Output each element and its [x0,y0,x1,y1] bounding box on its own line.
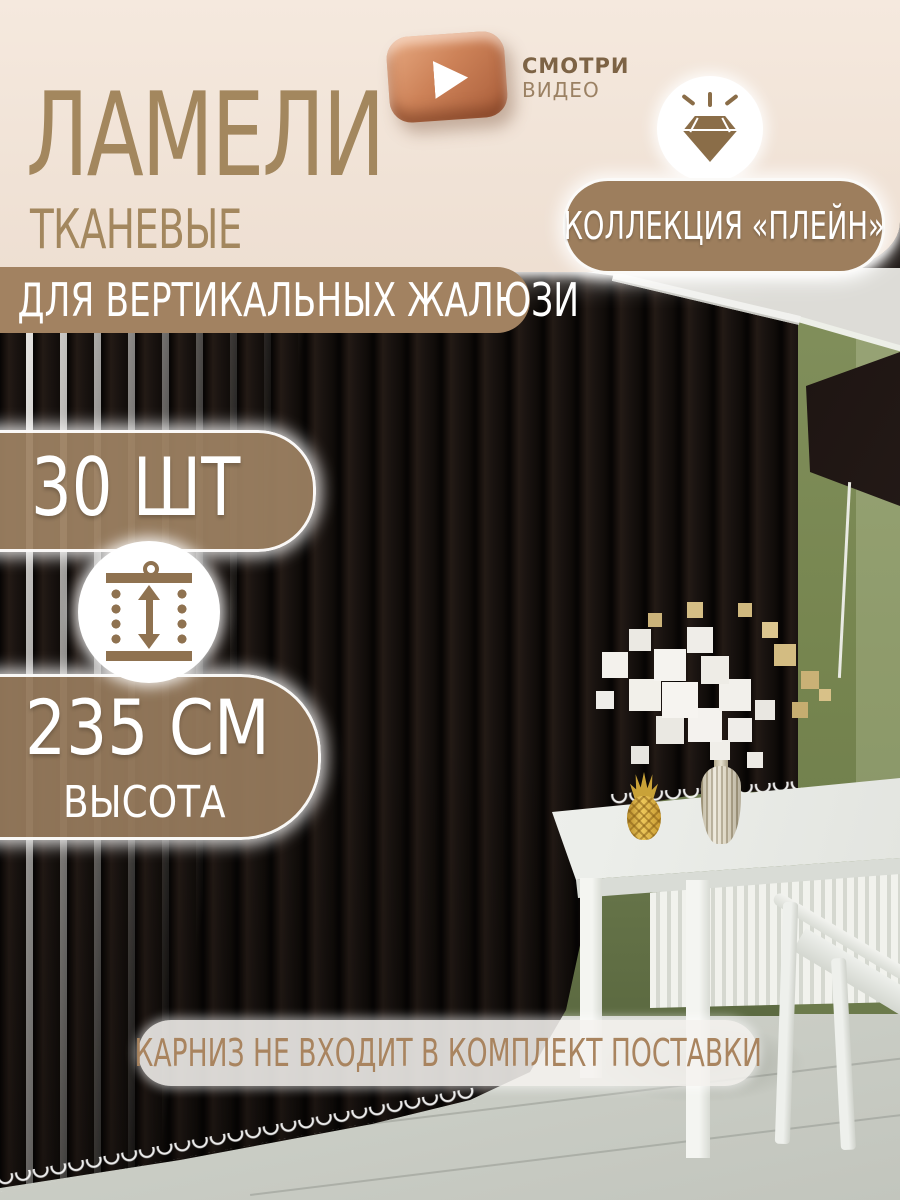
collection-badge-text: КОЛЛЕКЦИЯ «ПЛЕЙН» [563,204,884,248]
height-measure-icon [106,563,192,661]
quantity-badge: 30 ШТ [0,430,316,552]
diamond-ray [724,94,738,106]
height-label: ВЫСОТА [63,777,226,828]
icon-dots-right [177,589,187,649]
table-leg [686,880,710,1158]
video-badge-line2: ВИДЕО [522,78,600,102]
icon-top-bar [106,573,192,583]
watch-video-badge: СМОТРИ ВИДЕО [388,28,628,128]
banner-ribbon: ДЛЯ ВЕРТИКАЛЬНЫХ ЖАЛЮЗИ [0,267,530,333]
height-value: 235 СМ [25,683,270,772]
diamond-ray [681,94,695,106]
banner-text: ДЛЯ ВЕРТИКАЛЬНЫХ ЖАЛЮЗИ [0,273,579,327]
pineapple-figurine [627,796,661,840]
collection-badge: КОЛЛЕКЦИЯ «ПЛЕЙН» [563,178,885,274]
quantity-text: 30 ШТ [31,441,240,534]
play-icon [385,30,509,124]
diamond-icon [683,116,737,162]
video-badge-line1: СМОТРИ [522,54,629,78]
note-text: КАРНИЗ НЕ ВХОДИТ В КОМПЛЕКТ ПОСТАВКИ [134,1031,761,1075]
icon-arrow-down [138,634,160,649]
height-badge: 235 СМ ВЫСОТА [0,674,321,840]
product-card: ЛАМЕЛИ ТКАНЕВЫЕ ДЛЯ ВЕРТИКАЛЬНЫХ ЖАЛЮЗИ … [0,0,900,1200]
page-subtitle: ТКАНЕВЫЕ [30,198,324,261]
play-triangle-icon [433,59,470,99]
title-text: ЛАМЕЛИ [26,78,383,194]
vase [701,766,741,844]
icon-bottom-bar [106,651,192,661]
collection-icon-circle [657,76,763,182]
icon-dots-left [111,589,121,649]
subtitle-text: ТКАНЕВЫЕ [30,198,242,261]
icon-arrow-shaft [146,597,153,639]
diamond-ray [708,92,712,107]
height-icon-circle [78,541,220,683]
note-badge: КАРНИЗ НЕ ВХОДИТ В КОМПЛЕКТ ПОСТАВКИ [138,1020,758,1086]
